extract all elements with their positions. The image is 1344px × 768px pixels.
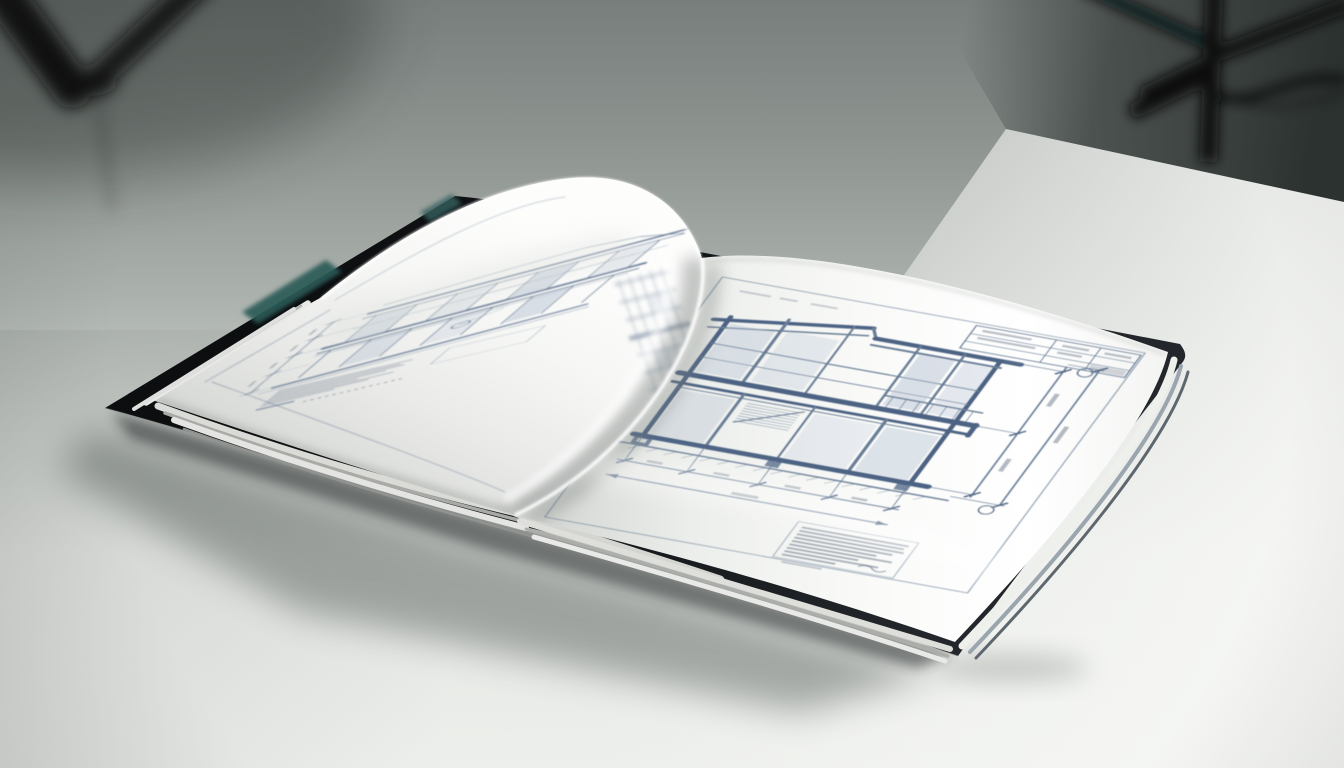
scene-svg	[0, 0, 1344, 768]
vignette	[0, 0, 1344, 768]
photo-scene	[0, 0, 1344, 768]
